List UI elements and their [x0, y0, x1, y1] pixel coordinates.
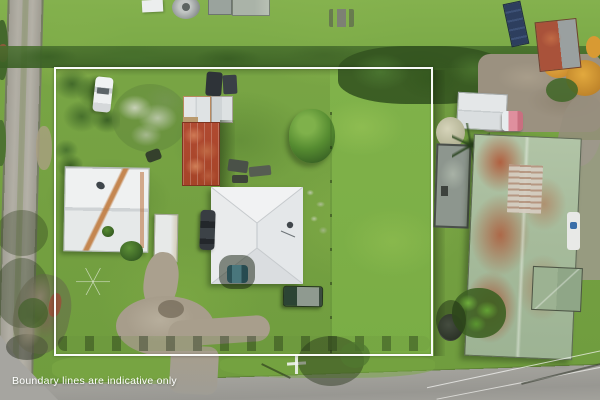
tree-shadow-dark: [436, 300, 466, 340]
gray-roof-building: [208, 0, 232, 15]
van-blue-mark: [570, 222, 577, 229]
caption: Boundary lines are indicative only: [12, 375, 177, 387]
boundary-rectangle: [54, 67, 433, 356]
gorse-green: [546, 78, 578, 102]
picnic-table: [329, 9, 354, 27]
white-canopy-building: [142, 0, 164, 13]
tank-center: [182, 3, 190, 11]
annex-window: [441, 186, 448, 196]
roof-pale-patch: [507, 164, 543, 213]
pink-car: [502, 111, 523, 131]
dry-bush: [36, 126, 52, 170]
small-rust-shed: [535, 18, 582, 72]
green-roof-building: [232, 0, 270, 16]
building-bay: [531, 266, 583, 312]
white-van: [567, 212, 580, 250]
brush-greens: [18, 298, 48, 328]
aerial-photo: Boundary lines are indicative only: [0, 0, 600, 400]
gorse-bush: [586, 36, 600, 58]
